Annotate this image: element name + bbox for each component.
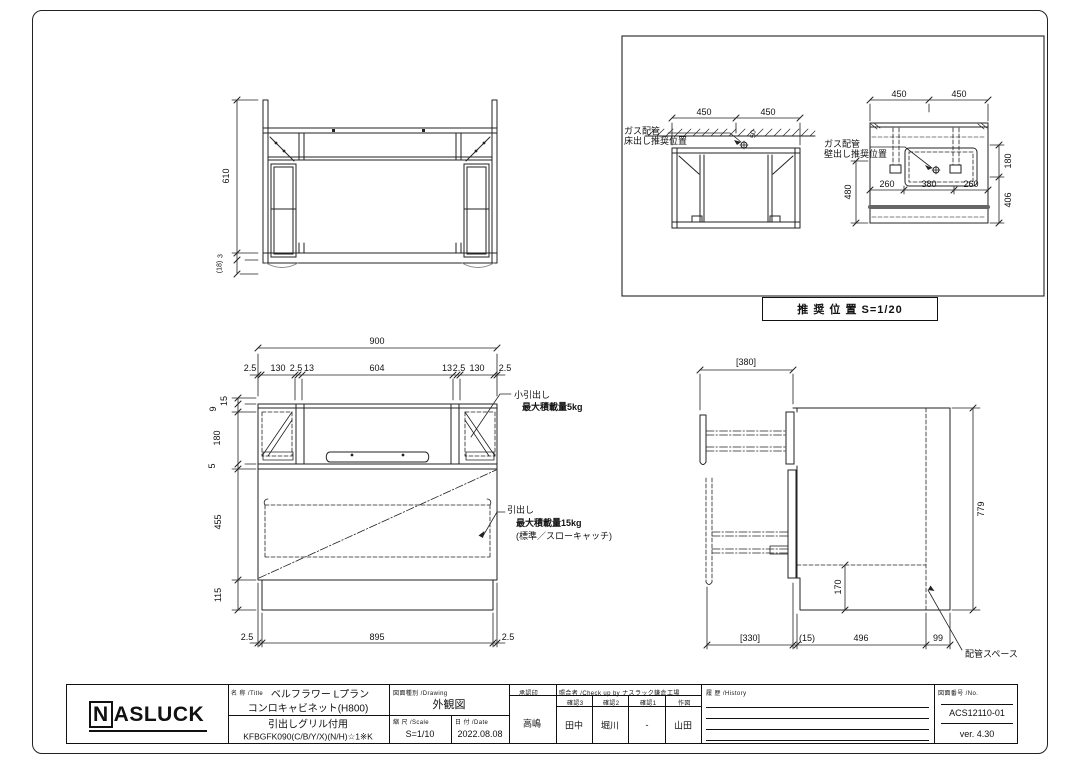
front-left-dim-180: 180 [212, 430, 222, 445]
drawing-type-value: 外観図 [433, 696, 466, 712]
side-bottom-dim-1: (15) [799, 633, 815, 643]
recommended-box-lines [622, 36, 1044, 296]
drawing-version: ver. 4.30 [960, 729, 995, 739]
product-title-line2: コンロキャビネット(H800) [248, 700, 369, 715]
top-view-gap-dim: 3 [218, 254, 225, 258]
wall-dim-450-right: 450 [951, 89, 966, 99]
scale-label: 縮 尺 /Scale [393, 717, 429, 726]
front-left-dim-5: 5 [207, 463, 217, 468]
scale-value: S=1/10 [406, 729, 435, 739]
floor-dim-450-right: 450 [760, 107, 775, 117]
tb-divider [628, 695, 629, 743]
side-view-lines [697, 367, 980, 650]
floor-dim-450-left: 450 [696, 107, 711, 117]
front-bottom-dim-0: 2.5 [241, 632, 254, 642]
tb-divider [665, 695, 666, 743]
gas-pipe-floor-note-line2: 床出し推奨位置 [624, 134, 687, 147]
check-label: 照合者 /Check up by ナスラック鎌倉工場 [559, 688, 680, 697]
drawer-note-line1: 引出し [507, 503, 534, 516]
wall-dim-260-right: 260 [963, 179, 978, 189]
tb-divider [509, 685, 510, 743]
approval-label: 承認印 [519, 688, 538, 697]
check-col-0-label: 確認3 [567, 698, 584, 707]
front-view-lines [232, 345, 511, 647]
tb-divider [701, 685, 702, 743]
side-base-dim: 170 [833, 579, 843, 594]
wall-dim-180: 180 [1003, 153, 1013, 168]
side-top-dim: [380] [736, 357, 756, 367]
front-top-dim-3: 13 [304, 363, 314, 373]
front-left-dim-455: 455 [213, 514, 223, 529]
front-top-dim-2: 2.5 [290, 363, 303, 373]
side-bottom-dim-2: 496 [853, 633, 868, 643]
top-view-lines [232, 97, 497, 277]
wall-dim-450-left: 450 [891, 89, 906, 99]
drawing-sheet: { "sheet": {"background": "#ffffff", "li… [0, 0, 1080, 764]
history-label: 履 歴 /History [706, 688, 746, 697]
wall-dim-380: 380 [921, 179, 936, 189]
product-code: KFBGFK090(C/B/Y/X)(N/H)☆1※K [243, 732, 373, 743]
drawing-number-label: 図面番号 /No. [938, 688, 978, 697]
floor-dim-offset: 50 [751, 130, 758, 138]
check-col-3-label: 作図 [678, 698, 691, 707]
tb-divider [389, 715, 509, 716]
front-top-dim-6: 2.5 [453, 363, 466, 373]
product-title-line3: 引出しグリル付用 [268, 716, 348, 731]
small-drawer-note-line2: 最大積載量5kg [522, 400, 583, 413]
front-top-dim-0: 2.5 [244, 363, 257, 373]
check-col-2-label: 確認1 [640, 698, 657, 707]
side-bottom-dim-3: 99 [933, 633, 943, 643]
title-block: NASLUCK 名 称 /Title ベルフラワー Lプラン コンロキャビネット… [66, 684, 1018, 744]
tb-divider [228, 685, 229, 743]
front-left-dim-15: 15 [219, 396, 229, 406]
check-col-2-value: - [646, 720, 649, 730]
drawer-note-line2: 最大積載量15kg [516, 516, 582, 529]
drawer-note-line3: (標準／スローキャッチ) [516, 529, 612, 542]
wall-dim-260-left: 260 [879, 179, 894, 189]
tb-divider [941, 704, 1013, 705]
tb-divider [706, 707, 929, 708]
logo-n-mark: N [89, 701, 113, 728]
check-col-3-value: 山田 [674, 719, 692, 732]
top-view-height-dim: 610 [221, 168, 231, 183]
drawing-number-value: ACS12110-01 [949, 708, 1005, 718]
front-top-dim-7: 130 [469, 363, 484, 373]
date-value: 2022.08.08 [457, 729, 502, 739]
front-left-dim-115: 115 [213, 588, 223, 602]
tb-divider [706, 718, 929, 719]
check-col-0-value: 田中 [565, 719, 583, 732]
wall-dim-480: 480 [843, 184, 853, 199]
front-top-dim-8: 2.5 [499, 363, 512, 373]
front-width-dim: 900 [369, 336, 384, 346]
name-label: 名 称 /Title [231, 688, 263, 697]
tb-divider [941, 723, 1013, 724]
side-height-dim: 779 [976, 501, 986, 516]
tb-divider [451, 715, 452, 743]
tb-divider [934, 685, 935, 743]
front-left-dim-9: 9 [208, 406, 218, 411]
drawing-linework [0, 0, 1080, 764]
tb-divider [592, 695, 593, 743]
tb-divider [706, 729, 929, 730]
gas-pipe-wall-note-line2: 壁出し推奨位置 [824, 147, 887, 160]
front-top-dim-4: 604 [369, 363, 384, 373]
nasluck-logo: NASLUCK [89, 701, 204, 728]
front-top-dim-5: 13 [442, 363, 452, 373]
product-title-line1: ベルフラワー Lプラン [271, 686, 369, 701]
side-bottom-dim-0: [330] [740, 633, 760, 643]
recommended-position-title: 推 奨 位 置 S=1/20 [762, 297, 938, 321]
check-col-1-value: 堀川 [601, 719, 619, 732]
front-top-dim-1: 130 [270, 363, 285, 373]
wall-dim-406: 406 [1003, 192, 1013, 207]
piping-space-note: 配管スペース [965, 647, 1018, 660]
tb-divider [706, 740, 929, 741]
tb-divider [389, 685, 390, 743]
top-view-overhang-dim: (18) [217, 261, 224, 273]
front-bottom-dim-2: 2.5 [502, 632, 515, 642]
approval-value: 高嶋 [523, 717, 541, 730]
date-label: 日 付 /Date [455, 717, 488, 726]
tb-divider [556, 685, 557, 743]
front-bottom-dim-1: 895 [369, 632, 384, 642]
check-col-1-label: 確認2 [603, 698, 620, 707]
